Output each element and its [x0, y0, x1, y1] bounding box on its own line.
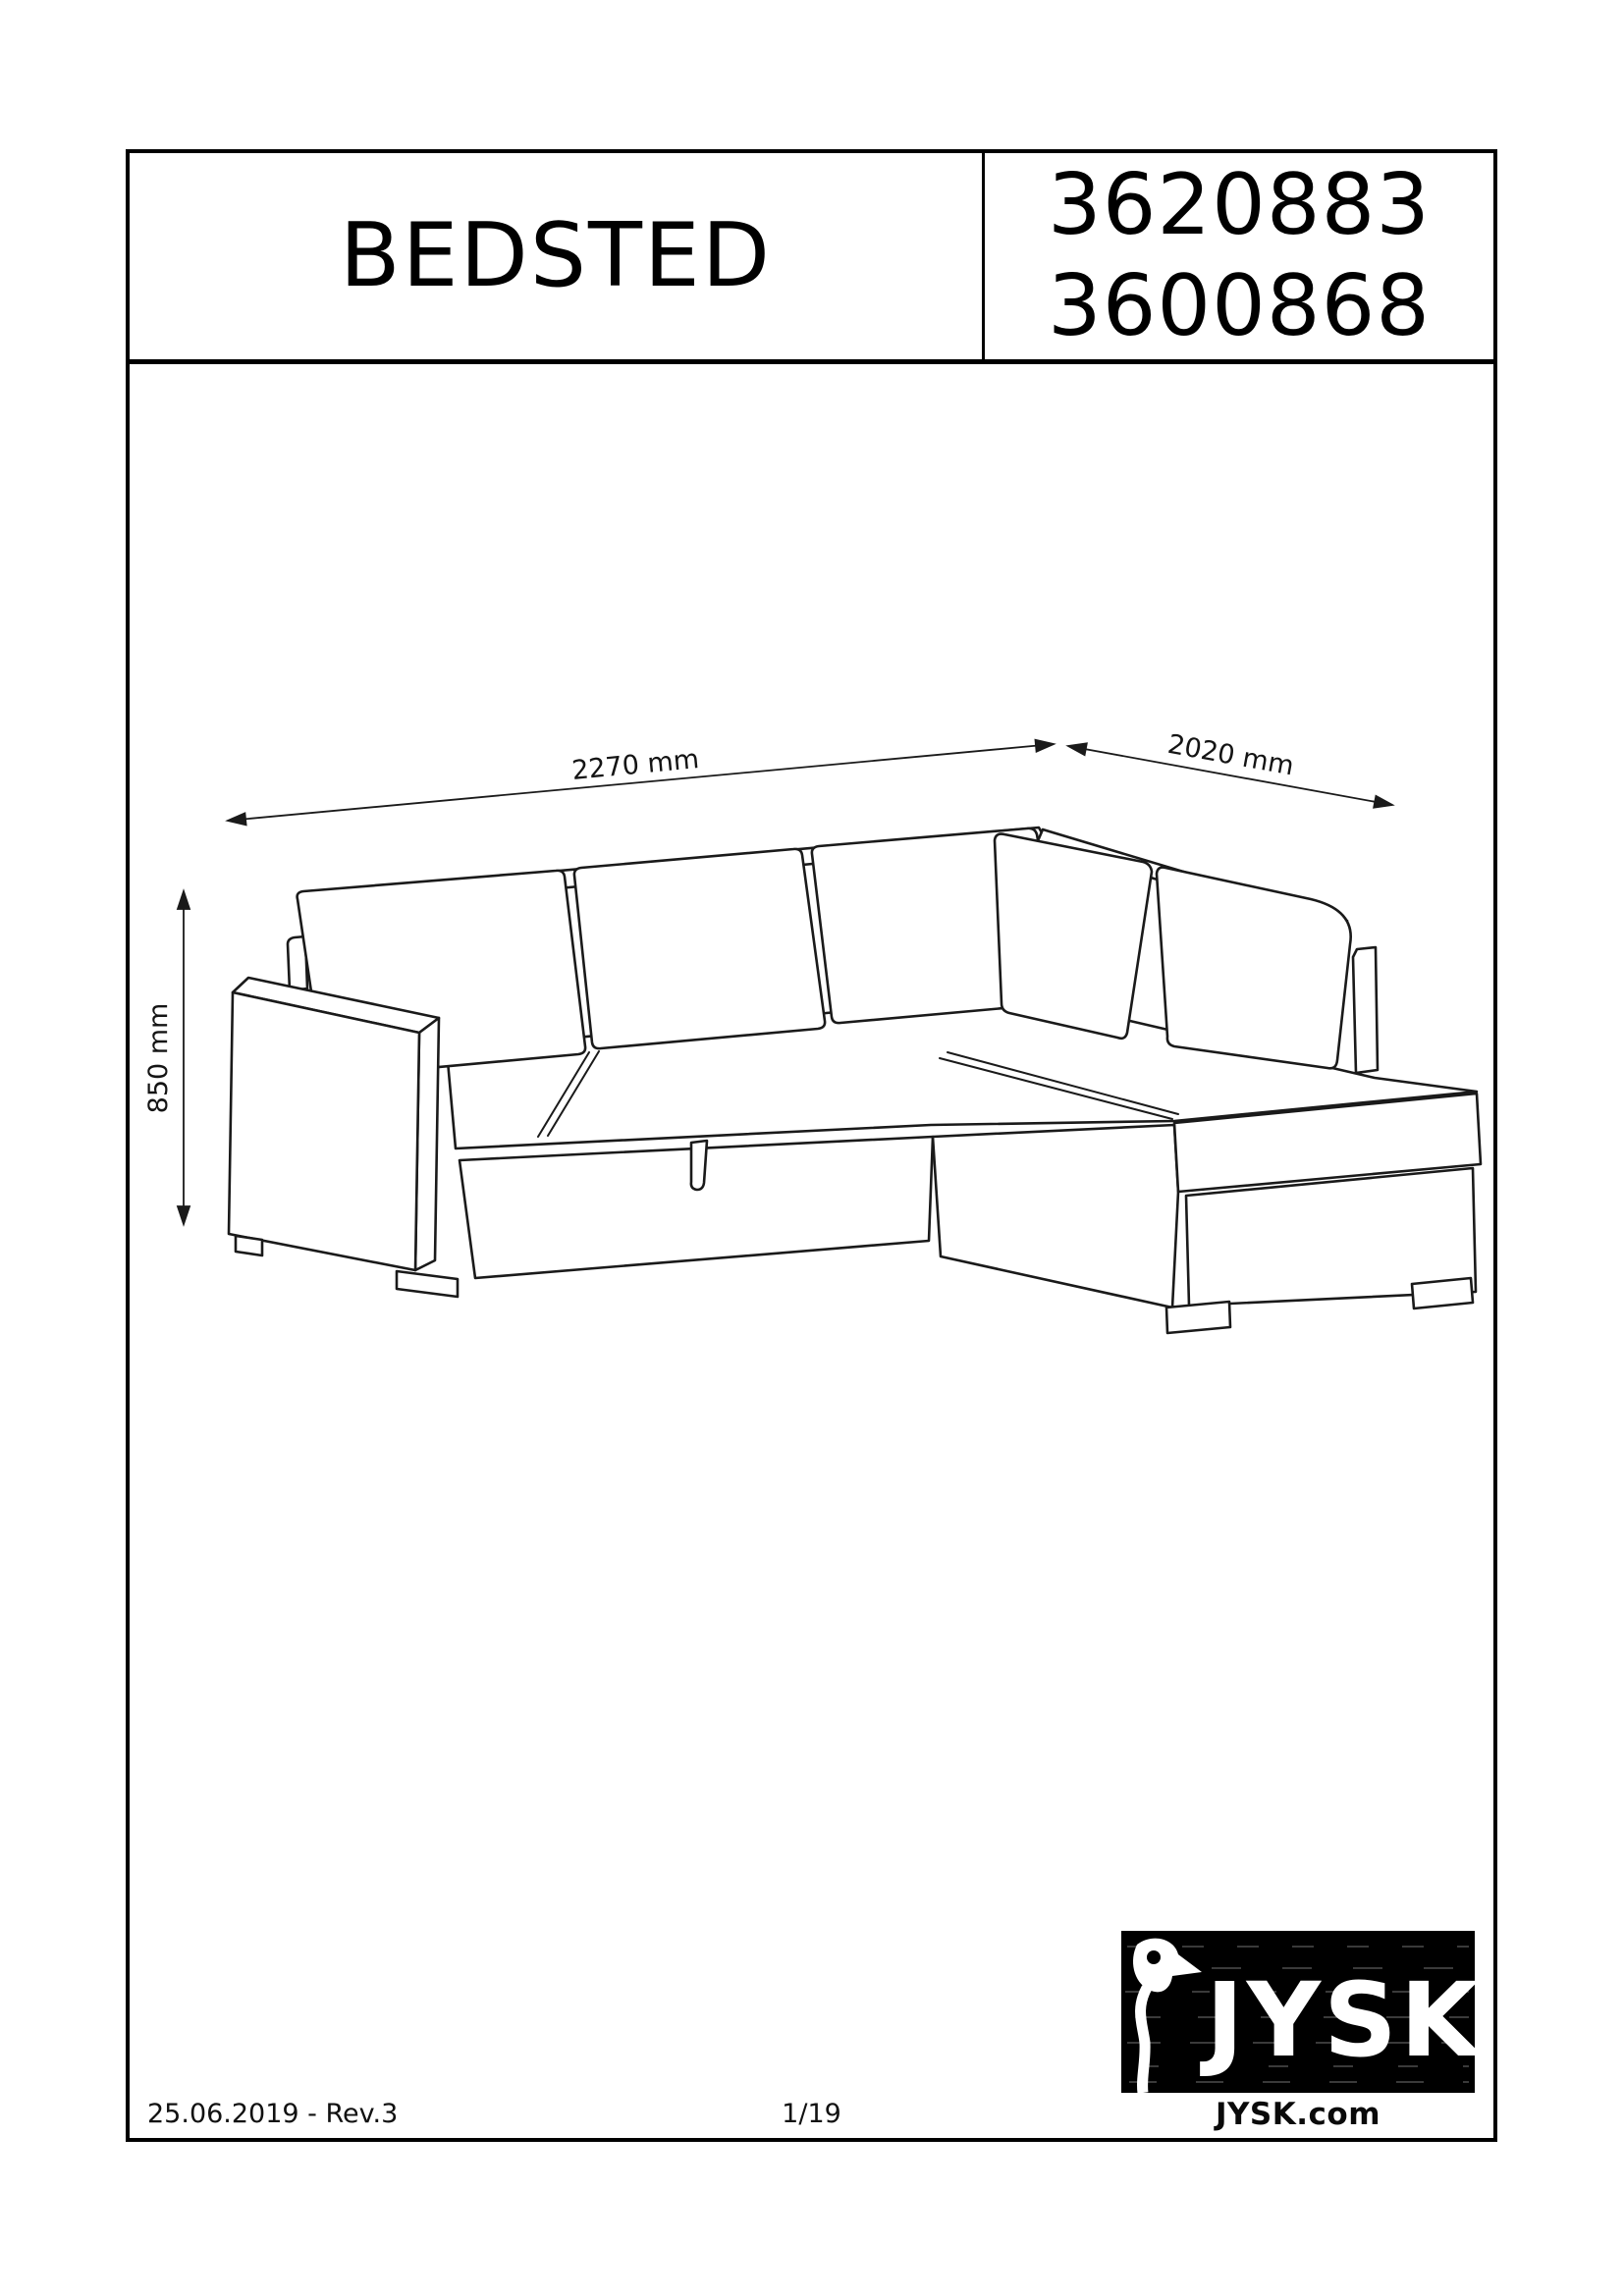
article-number-1: 3620883	[1048, 155, 1431, 256]
page-border-frame	[126, 149, 1497, 2142]
logo-wordmark: JYSK	[1200, 1960, 1475, 2080]
website-url: JYSK.com	[1121, 2097, 1475, 2132]
header-codes-cell: 3620883 3600868	[982, 153, 1493, 359]
jysk-logo: JYSK	[1121, 1931, 1475, 2093]
header-table: BEDSTED 3620883 3600868	[130, 153, 1493, 364]
header-title-cell: BEDSTED	[130, 153, 982, 359]
product-title: BEDSTED	[340, 212, 772, 300]
manual-cover-page: 2270 mm 2020 mm 850 mm	[0, 0, 1624, 2296]
article-number-2: 3600868	[1048, 256, 1431, 357]
